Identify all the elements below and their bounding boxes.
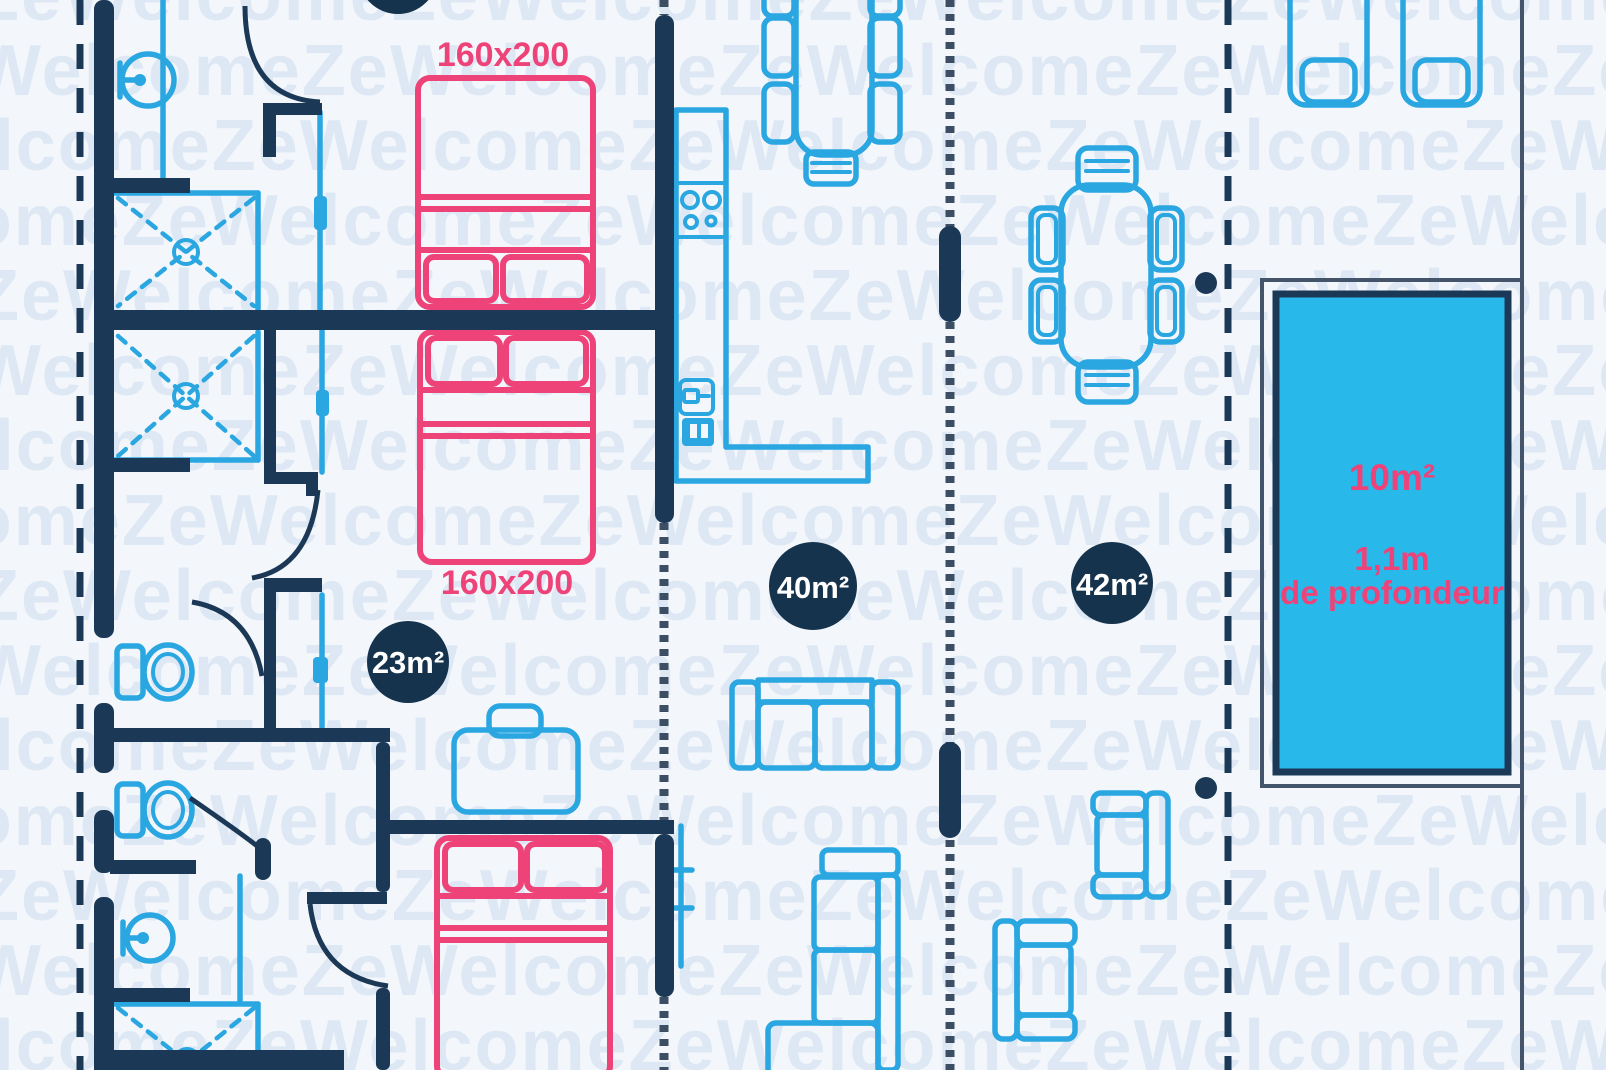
- floor-plan: ZeWelcomeZeWelcomeZeWelcomeZeWelcomeZeWe…: [0, 0, 1606, 1070]
- bed-size-label: 160x200: [437, 36, 569, 74]
- pool-depth-caption: de profondeur: [1280, 574, 1504, 611]
- floor-plan-canvas: ZeWelcomeZeWelcomeZeWelcomeZeWelcomeZeWe…: [0, 0, 1606, 1070]
- pool-area-label: 10m²: [1349, 457, 1435, 498]
- pool-depth-label: 1,1m: [1354, 540, 1429, 577]
- dishwasher-icon: [682, 418, 714, 446]
- room-badge-label: 42m²: [1076, 567, 1148, 602]
- room-badge-label: 40m²: [777, 570, 849, 605]
- swimming-pool-icon: [1276, 294, 1508, 772]
- bed-size-label: 160x200: [441, 564, 573, 602]
- watermark-text: ZeWelcomeZeWelcomeZeWelcomeZeWelcomeZeWe…: [0, 781, 1606, 861]
- room-badge-label: 23m²: [372, 645, 444, 680]
